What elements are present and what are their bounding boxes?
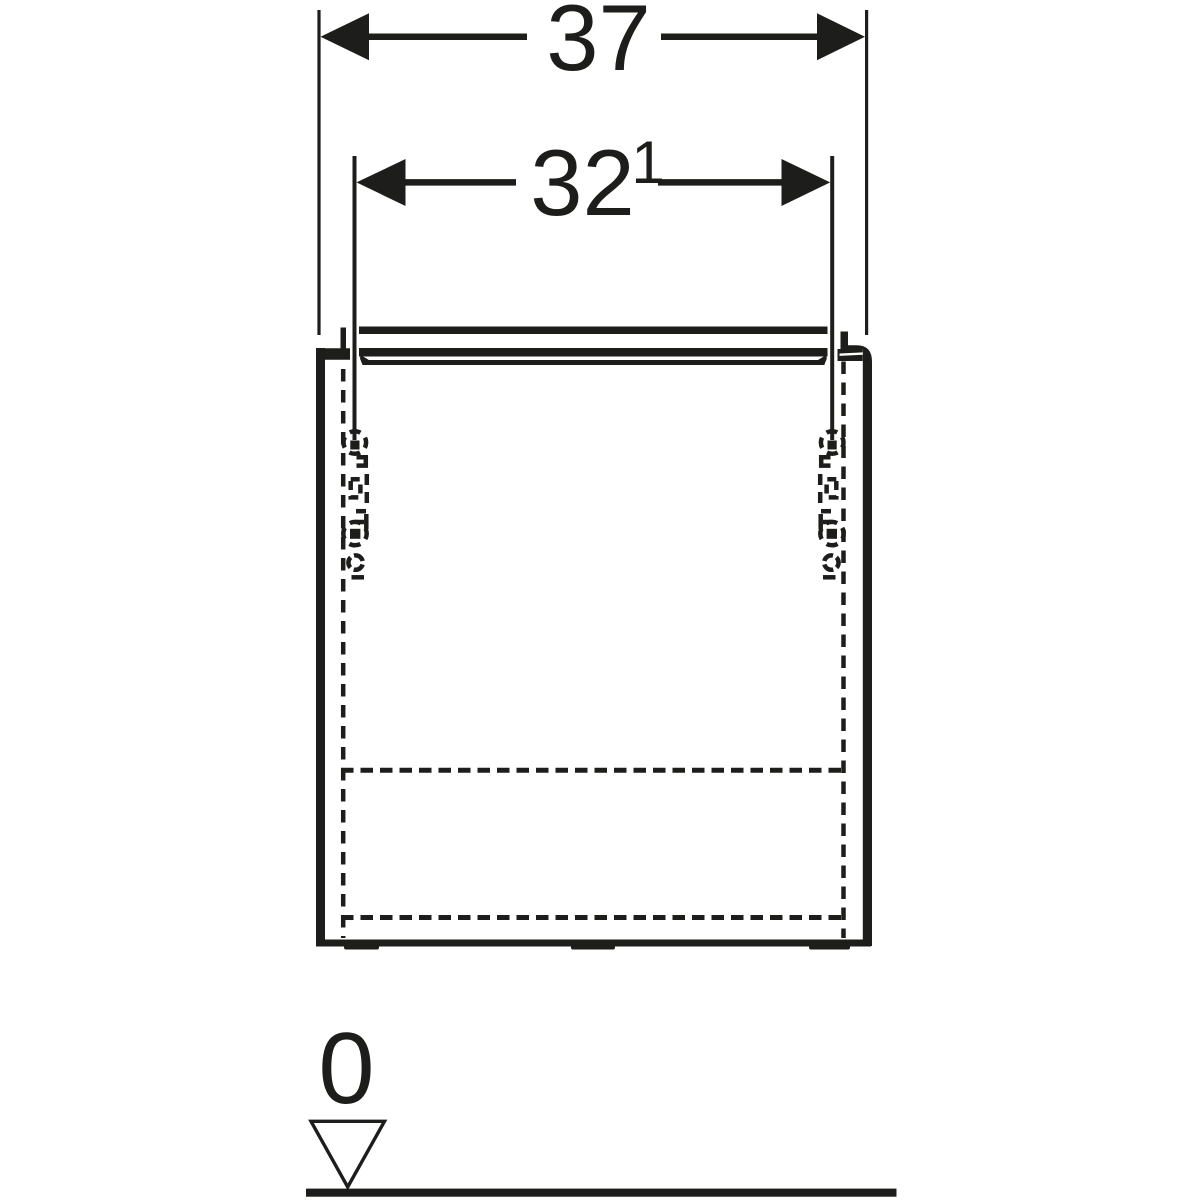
svg-text:32: 32	[530, 130, 635, 235]
svg-text:1: 1	[631, 129, 664, 196]
svg-text:37: 37	[546, 0, 651, 90]
svg-text:0: 0	[318, 1013, 374, 1125]
